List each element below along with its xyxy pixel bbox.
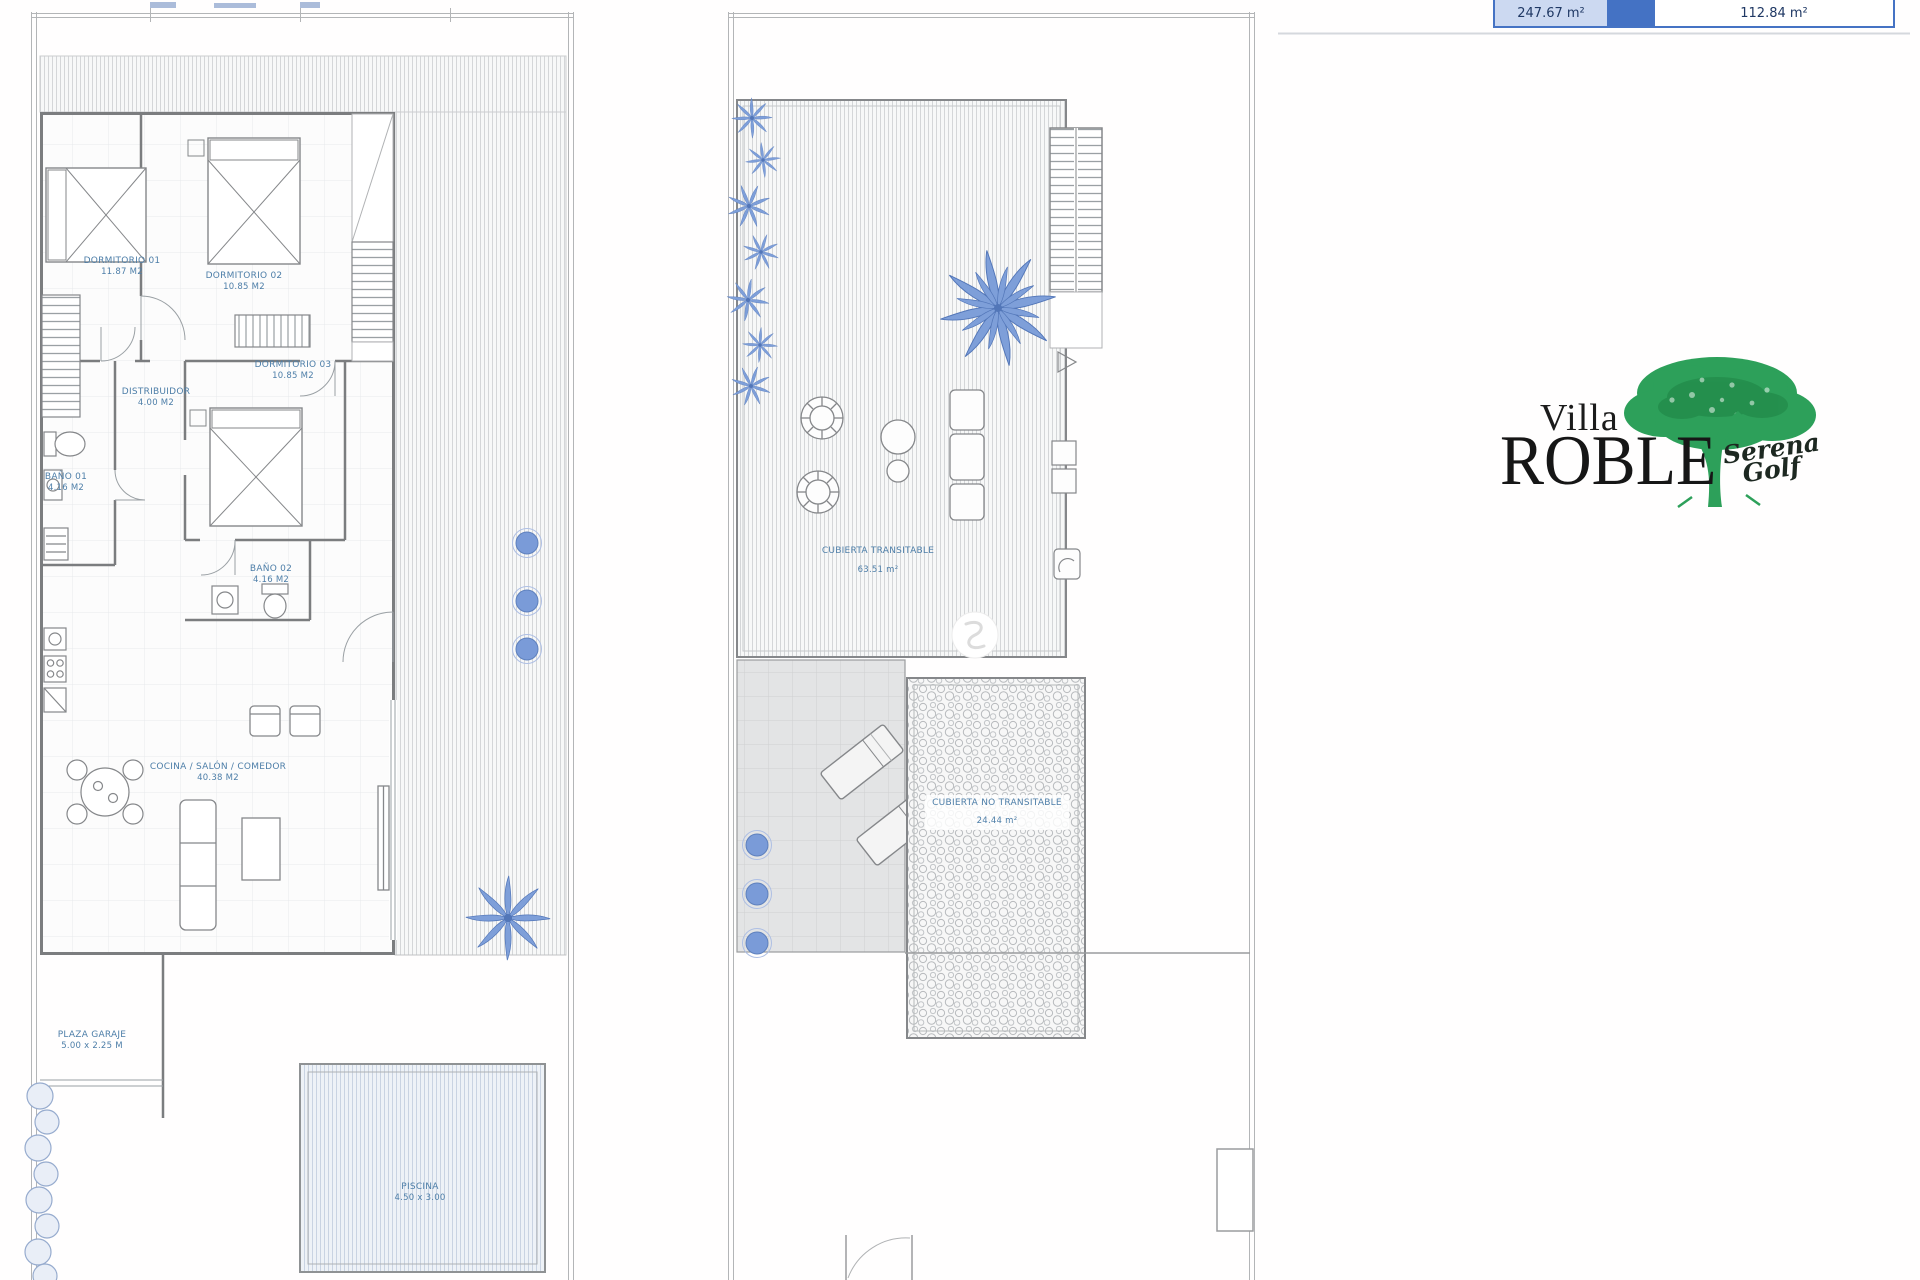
entrance-steps bbox=[352, 114, 393, 361]
ground-floor-plan bbox=[25, 2, 574, 1280]
bed-dorm1 bbox=[46, 168, 146, 262]
shrubs-left-edge bbox=[25, 1083, 59, 1280]
roof-stairs bbox=[1050, 128, 1102, 372]
roof-plan bbox=[721, 12, 1255, 1280]
room-label-cocina-salon-comedor: COCINA / SALÓN / COMEDOR40.38 M2 bbox=[150, 762, 286, 784]
room-label-piscina: PISCINA4.50 x 3.00 bbox=[394, 1182, 445, 1204]
floorplan-sheet: DORMITORIO 0111.87 M2 DORMITORIO 0210.85… bbox=[0, 0, 1920, 1280]
room-label-dormitorio-02: DORMITORIO 0210.85 M2 bbox=[206, 271, 283, 293]
cutoff-top-annotations bbox=[150, 2, 320, 8]
built-area-cell: 112.84 m² bbox=[1655, 0, 1893, 26]
wardrobe-left bbox=[42, 295, 80, 417]
room-label-bano-01: BAÑO 014.16 M2 bbox=[45, 472, 87, 494]
room-label-bano-02: BAÑO 024.16 M2 bbox=[250, 564, 292, 586]
room-label-plaza-garaje: PLAZA GARAJE5.00 x 2.25 M bbox=[58, 1030, 127, 1052]
kitchen-appliances bbox=[44, 628, 66, 712]
watermark-badge bbox=[952, 612, 998, 658]
roof-terrace-gray bbox=[737, 660, 905, 952]
deco-blue-circles-roof bbox=[743, 831, 772, 958]
pool bbox=[300, 1064, 545, 1272]
logo-text-roble: ROBLE bbox=[1500, 428, 1716, 495]
area-summary-table: 247.67 m² 112.84 m² bbox=[1493, 0, 1895, 28]
total-area-cell: 247.67 m² bbox=[1495, 0, 1607, 26]
terrace-hatch-top bbox=[40, 56, 566, 112]
room-label-cubierta-transitable: CUBIERTA TRANSITABLE63.51 m² bbox=[822, 546, 934, 576]
room-label-distribuidor: DISTRIBUIDOR4.00 M2 bbox=[122, 387, 190, 409]
table-divider-cell bbox=[1609, 0, 1653, 26]
floorplan-drawing bbox=[0, 0, 1920, 1280]
wardrobe-dorm2 bbox=[235, 315, 310, 347]
terrace-hatch-right bbox=[395, 112, 566, 955]
room-label-dormitorio-03: DORMITORIO 0310.85 M2 bbox=[255, 360, 332, 382]
room-label-dormitorio-01: DORMITORIO 0111.87 M2 bbox=[84, 256, 161, 278]
garage-lines bbox=[40, 1080, 163, 1086]
gravel-roof bbox=[907, 678, 1085, 1038]
room-label-cubierta-no-transitable: CUBIERTA NO TRANSITABLE24.44 m² bbox=[925, 795, 1069, 830]
